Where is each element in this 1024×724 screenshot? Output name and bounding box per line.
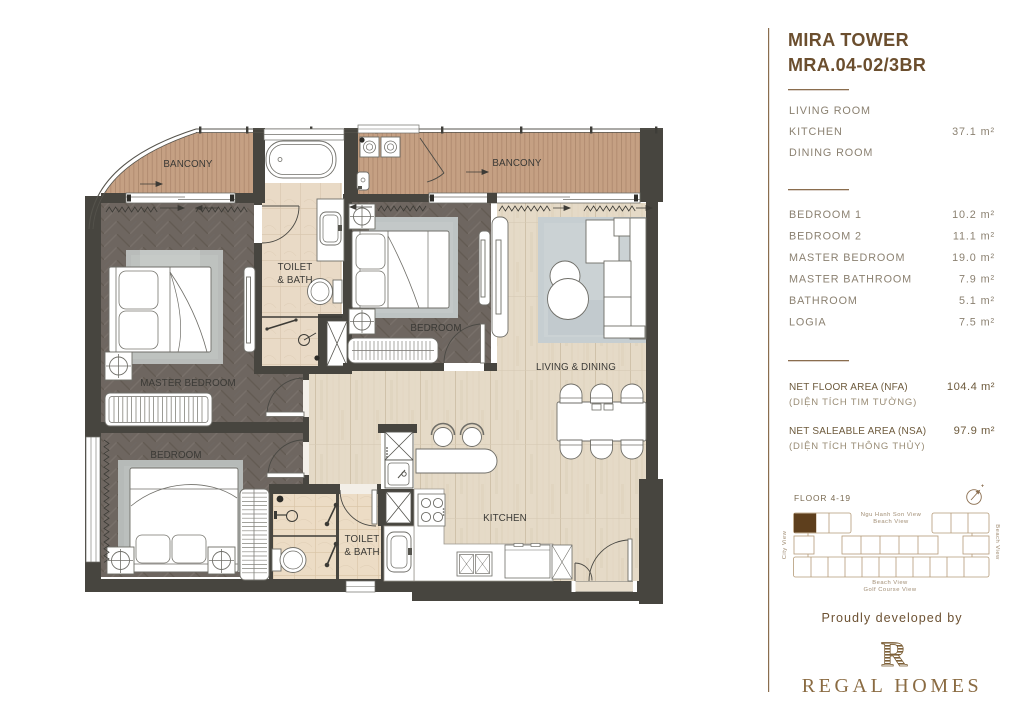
svg-text:97.9 m²: 97.9 m²	[954, 425, 995, 437]
svg-text:10.2 m²: 10.2 m²	[952, 209, 995, 221]
svg-text:Ngu Hanh Son View: Ngu Hanh Son View	[861, 512, 922, 518]
svg-text:7.9 m²: 7.9 m²	[959, 274, 995, 286]
svg-text:KITCHEN: KITCHEN	[483, 513, 527, 524]
svg-text:& BATH: & BATH	[277, 275, 312, 286]
svg-text:MRA.04-02/3BR: MRA.04-02/3BR	[788, 55, 926, 75]
svg-text:7.5 m²: 7.5 m²	[959, 317, 995, 329]
svg-text:City View: City View	[782, 530, 788, 559]
svg-text:BEDROOM: BEDROOM	[410, 323, 461, 334]
svg-text:37.1 m²: 37.1 m²	[952, 126, 995, 138]
svg-text:19.0 m²: 19.0 m²	[952, 252, 995, 264]
svg-text:LOGIA: LOGIA	[789, 317, 827, 329]
svg-text:BANCONY: BANCONY	[163, 159, 213, 170]
svg-text:LIVING & DINING: LIVING & DINING	[536, 362, 616, 373]
svg-text:KITCHEN: KITCHEN	[789, 126, 843, 138]
svg-text:MASTER BEDROOM: MASTER BEDROOM	[789, 252, 905, 264]
svg-text:MASTER BEDROOM: MASTER BEDROOM	[140, 378, 236, 389]
svg-text:BEDROOM: BEDROOM	[150, 450, 201, 461]
svg-text:BEDROOM 1: BEDROOM 1	[789, 209, 862, 221]
svg-text:(DIỆN TÍCH THÔNG THỦY): (DIỆN TÍCH THÔNG THỦY)	[789, 440, 925, 452]
svg-text:BEDROOM 2: BEDROOM 2	[789, 231, 862, 243]
svg-text:Beach View: Beach View	[994, 524, 1000, 560]
svg-text:104.4 m²: 104.4 m²	[947, 381, 995, 393]
svg-text:MASTER BATHROOM: MASTER BATHROOM	[789, 274, 912, 286]
svg-text:MIRA TOWER: MIRA TOWER	[788, 30, 909, 50]
svg-text:(DIỆN TÍCH TIM TƯỜNG): (DIỆN TÍCH TIM TƯỜNG)	[789, 397, 917, 408]
svg-text:BANCONY: BANCONY	[492, 158, 542, 169]
svg-text:FLOOR 4-19: FLOOR 4-19	[794, 493, 851, 503]
svg-text:11.1 m²: 11.1 m²	[953, 231, 995, 243]
svg-text:& BATH: & BATH	[344, 547, 379, 558]
svg-text:REGAL HOMES: REGAL HOMES	[802, 675, 983, 697]
svg-text:Proudly developed by: Proudly developed by	[821, 611, 962, 625]
svg-text:NET SALEABLE AREA (NSA): NET SALEABLE AREA (NSA)	[789, 426, 926, 437]
svg-text:NET FLOOR AREA (NFA): NET FLOOR AREA (NFA)	[789, 382, 908, 393]
svg-text:Beach View: Beach View	[873, 519, 909, 525]
svg-text:R: R	[881, 634, 908, 674]
svg-text:DINING ROOM: DINING ROOM	[789, 147, 873, 159]
svg-text:Beach View: Beach View	[872, 580, 908, 586]
svg-text:TOILET: TOILET	[278, 262, 313, 273]
svg-text:LIVING ROOM: LIVING ROOM	[789, 105, 871, 117]
svg-text:Golf Course View: Golf Course View	[864, 587, 917, 593]
svg-text:5.1 m²: 5.1 m²	[959, 295, 995, 307]
svg-text:BATHROOM: BATHROOM	[789, 295, 858, 307]
svg-text:TOILET: TOILET	[345, 534, 380, 545]
